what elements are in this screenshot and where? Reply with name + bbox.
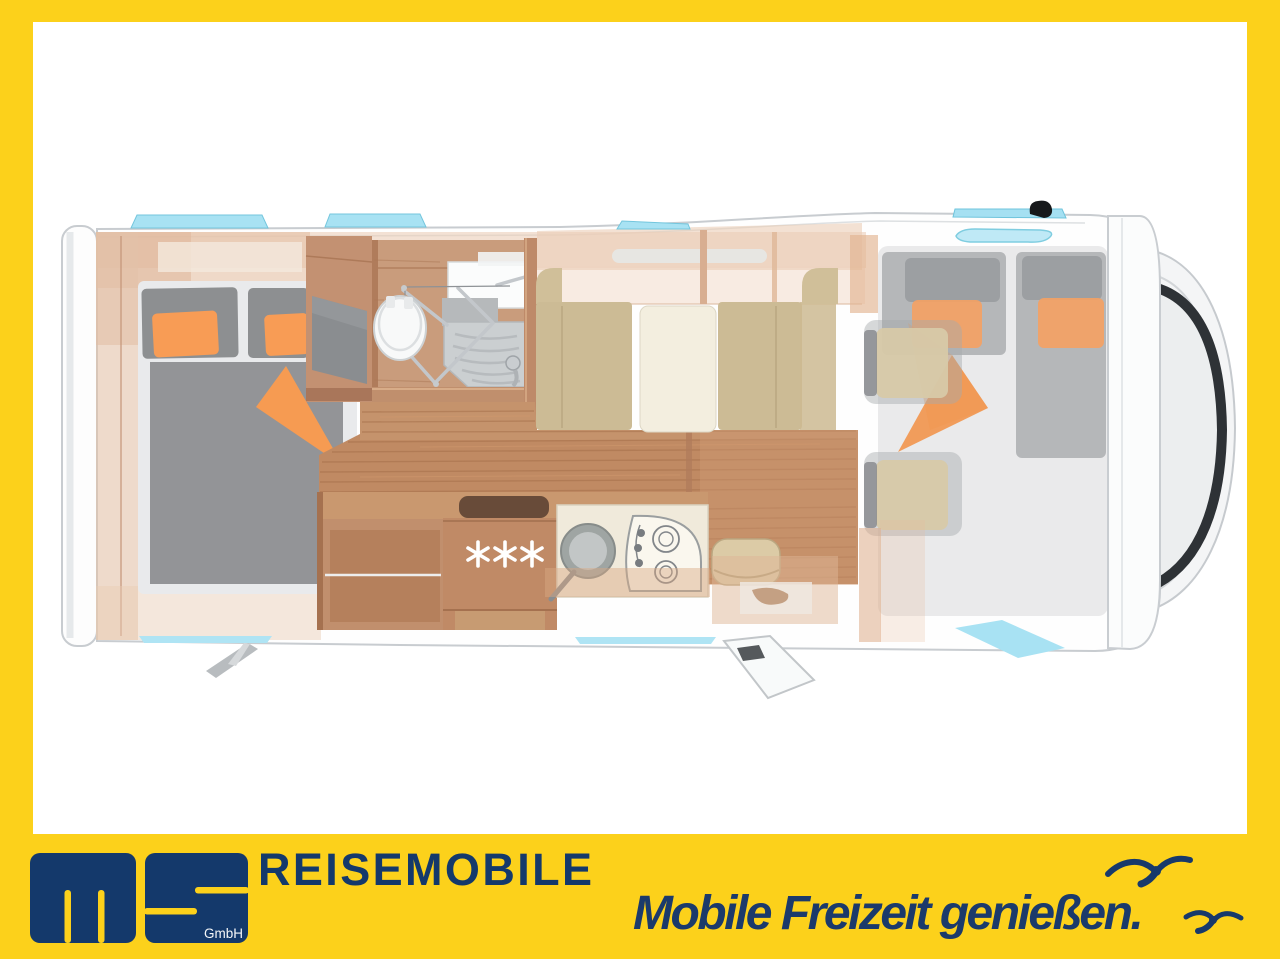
svg-text:Mobile Freizeit genießen.: Mobile Freizeit genießen. [633,887,1141,940]
svg-text:REISEMOBILE: REISEMOBILE [258,844,594,895]
svg-text:GmbH: GmbH [204,926,243,941]
